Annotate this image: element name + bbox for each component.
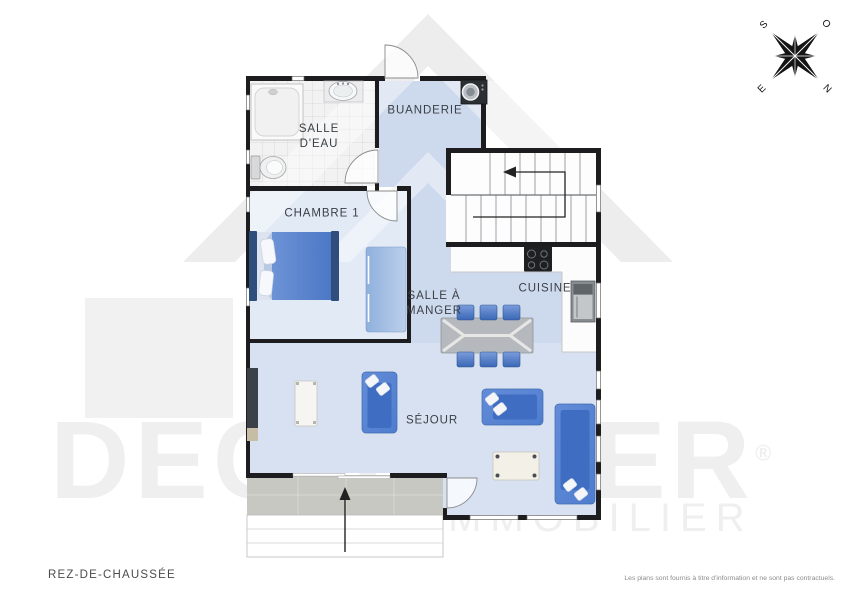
compass-label-south: S (758, 19, 771, 32)
window-left-2 (247, 150, 250, 164)
refrigerator (571, 281, 595, 322)
washing-machine (461, 80, 487, 104)
plan-disclaimer: Les plans sont fournis à titre d'informa… (624, 575, 835, 582)
window-bay-1 (597, 371, 601, 389)
sofa-right (555, 404, 595, 504)
side-table (295, 381, 317, 426)
room-label-buanderie: BUANDERIE (387, 104, 462, 119)
window-top (292, 77, 304, 81)
window-stairs (597, 185, 601, 212)
room-label-salle-deau: SALLE D'EAU (299, 122, 339, 152)
room-label-cuisine: CUISINE (519, 282, 572, 297)
sink (324, 81, 363, 102)
terrace (247, 475, 443, 557)
window-bay-2 (597, 400, 601, 424)
floor-level-label: REZ-DE-CHAUSSÉE (48, 569, 176, 581)
cooktop (524, 247, 552, 272)
window-kitchen (597, 283, 601, 318)
compass-label-east: E (756, 83, 769, 96)
dining-table (441, 318, 533, 353)
compass-label-west: O (819, 17, 832, 30)
sliding-door-panel-1 (293, 474, 345, 477)
window-bottom-1 (470, 516, 518, 520)
window-left-1 (247, 95, 250, 110)
sofa-left (362, 372, 397, 433)
window-bay-3 (597, 436, 601, 462)
room-label-sejour: SÉJOUR (406, 414, 458, 429)
compass-rose: S O E N (745, 6, 845, 106)
bed (249, 231, 339, 301)
sliding-door-panel-2 (338, 476, 390, 479)
coffee-table (493, 452, 539, 480)
shower (251, 84, 303, 140)
wardrobe (366, 247, 406, 332)
toilet (251, 156, 286, 179)
window-left-3 (247, 197, 250, 212)
tv-unit (247, 368, 258, 441)
floor-plan-page: DECORDIER® IMMOBILIER (0, 0, 848, 600)
window-bay-4 (597, 474, 601, 490)
room-label-chambre-1: CHAMBRE 1 (284, 207, 359, 222)
window-bottom-2 (527, 516, 577, 520)
compass-label-north: N (820, 83, 833, 96)
room-label-salle-a-manger: SALLE À MANGER (406, 289, 462, 319)
sofa-top (482, 389, 543, 425)
